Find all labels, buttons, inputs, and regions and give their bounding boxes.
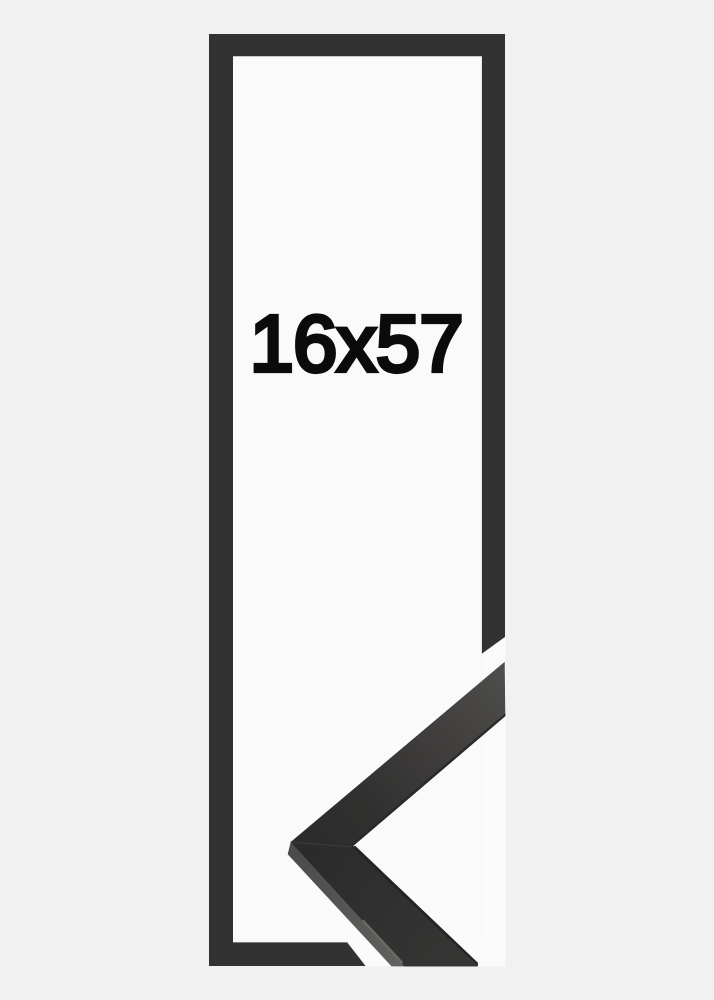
svg-text:16x57: 16x57 — [250, 299, 464, 388]
